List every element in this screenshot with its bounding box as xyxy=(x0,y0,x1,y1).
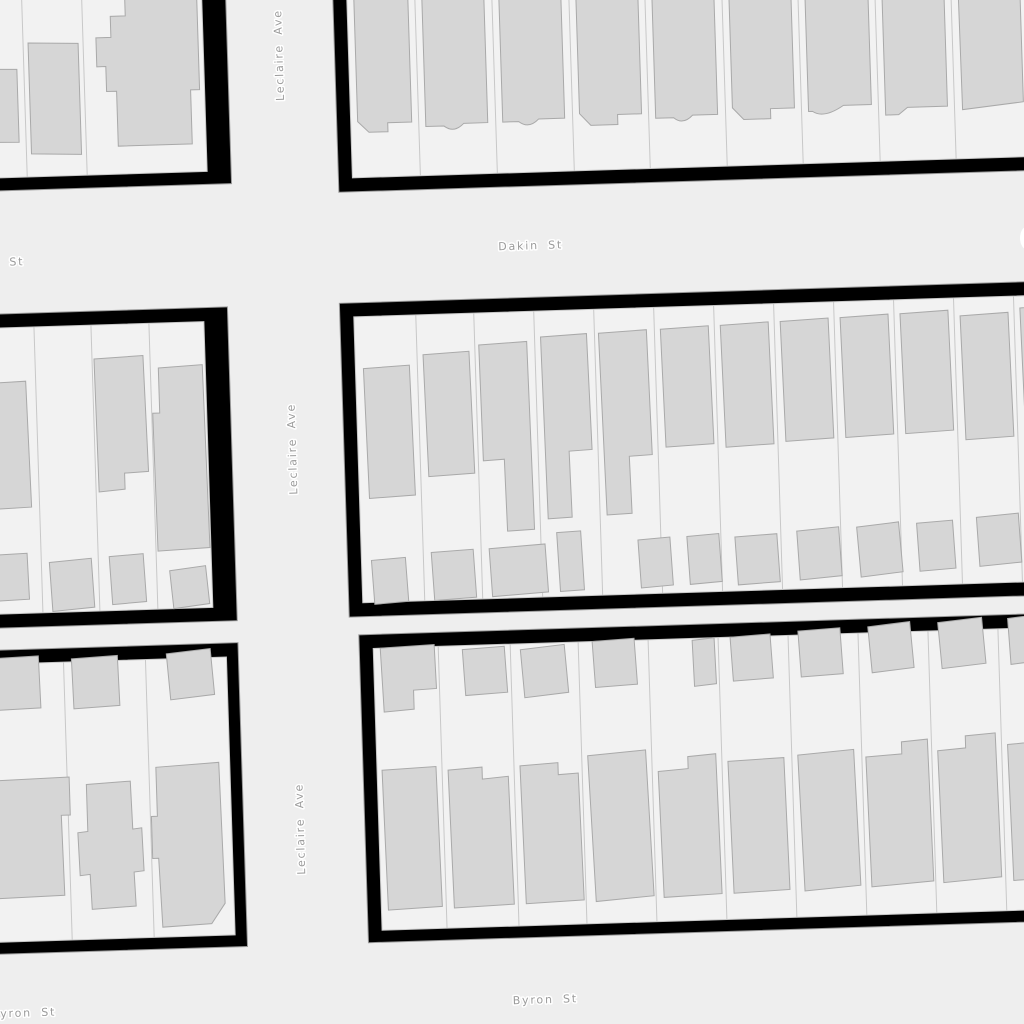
building-footprint xyxy=(71,655,120,708)
building-footprint xyxy=(109,554,147,605)
building-footprint xyxy=(976,513,1022,566)
city-block-northwest xyxy=(0,0,232,193)
building-footprint xyxy=(638,537,674,588)
city-block-southwest xyxy=(0,643,248,955)
building-footprint xyxy=(735,534,781,585)
building-footprint xyxy=(371,557,408,604)
city-block-southeast xyxy=(359,613,1024,943)
building-footprint xyxy=(28,41,82,156)
building-footprint xyxy=(916,520,956,571)
building-footprint xyxy=(166,648,215,699)
building-footprint xyxy=(170,566,210,609)
building-footprint xyxy=(900,310,954,434)
building-footprint xyxy=(938,617,987,668)
building-footprint xyxy=(780,318,834,442)
building-footprint xyxy=(462,646,507,695)
city-block-northeast xyxy=(332,0,1024,192)
building-footprint xyxy=(868,621,915,672)
building-footprint xyxy=(728,0,795,120)
city-block-west-central xyxy=(0,307,237,629)
building-footprint xyxy=(865,739,934,887)
building-footprint xyxy=(557,531,585,592)
building-footprint xyxy=(363,365,415,498)
building-footprint xyxy=(840,314,894,438)
building-footprint xyxy=(431,549,477,600)
building-footprint xyxy=(960,312,1014,440)
street-label-byron-st: Byron St xyxy=(513,992,579,1007)
street-label-byron-st-west-clipped: Byron St xyxy=(0,1006,56,1021)
city-block-east-central xyxy=(339,281,1024,617)
building-footprint xyxy=(520,762,584,904)
building-footprint xyxy=(94,355,149,492)
parcel-map-canvas: Leclaire Ave Leclaire Ave Leclaire Ave D… xyxy=(0,0,1024,1024)
building-footprint xyxy=(0,381,32,511)
building-footprint xyxy=(797,527,843,580)
street-label-dakin-st-west-clipped: Dakin St xyxy=(0,255,25,270)
building-footprint xyxy=(0,67,19,144)
building-footprint xyxy=(588,750,655,902)
building-footprint xyxy=(575,0,642,126)
building-footprint xyxy=(0,777,73,900)
building-footprint xyxy=(728,758,790,894)
map-viewport[interactable]: Leclaire Ave Leclaire Ave Leclaire Ave D… xyxy=(0,0,1024,1024)
city-blocks xyxy=(0,0,1024,955)
building-footprint xyxy=(423,351,475,476)
building-footprint xyxy=(520,644,569,697)
building-footprint xyxy=(0,656,41,712)
building-footprint xyxy=(448,766,514,908)
building-footprint xyxy=(382,766,442,910)
building-footprint xyxy=(49,558,95,611)
building-footprint xyxy=(592,638,637,687)
building-footprint xyxy=(804,0,872,115)
building-footprint xyxy=(798,749,861,891)
building-footprint xyxy=(651,0,718,122)
building-footprint xyxy=(658,754,722,898)
building-footprint xyxy=(421,0,488,130)
building-footprint xyxy=(956,0,1023,110)
building-footprint xyxy=(151,365,210,552)
building-footprint xyxy=(937,733,1002,883)
building-footprint xyxy=(353,0,412,133)
building-footprint xyxy=(687,533,723,584)
building-footprint xyxy=(498,0,565,126)
building-footprint xyxy=(720,322,774,448)
building-footprint xyxy=(730,634,773,681)
building-footprint xyxy=(880,0,947,115)
building-footprint xyxy=(798,628,843,677)
building-footprint xyxy=(0,553,30,603)
building-footprint xyxy=(692,638,716,687)
building-footprint xyxy=(489,544,549,597)
building-footprint xyxy=(660,326,714,448)
building-footprint xyxy=(150,762,226,927)
street-label-dakin-st: Dakin St xyxy=(498,238,563,253)
building-footprint xyxy=(857,522,904,577)
